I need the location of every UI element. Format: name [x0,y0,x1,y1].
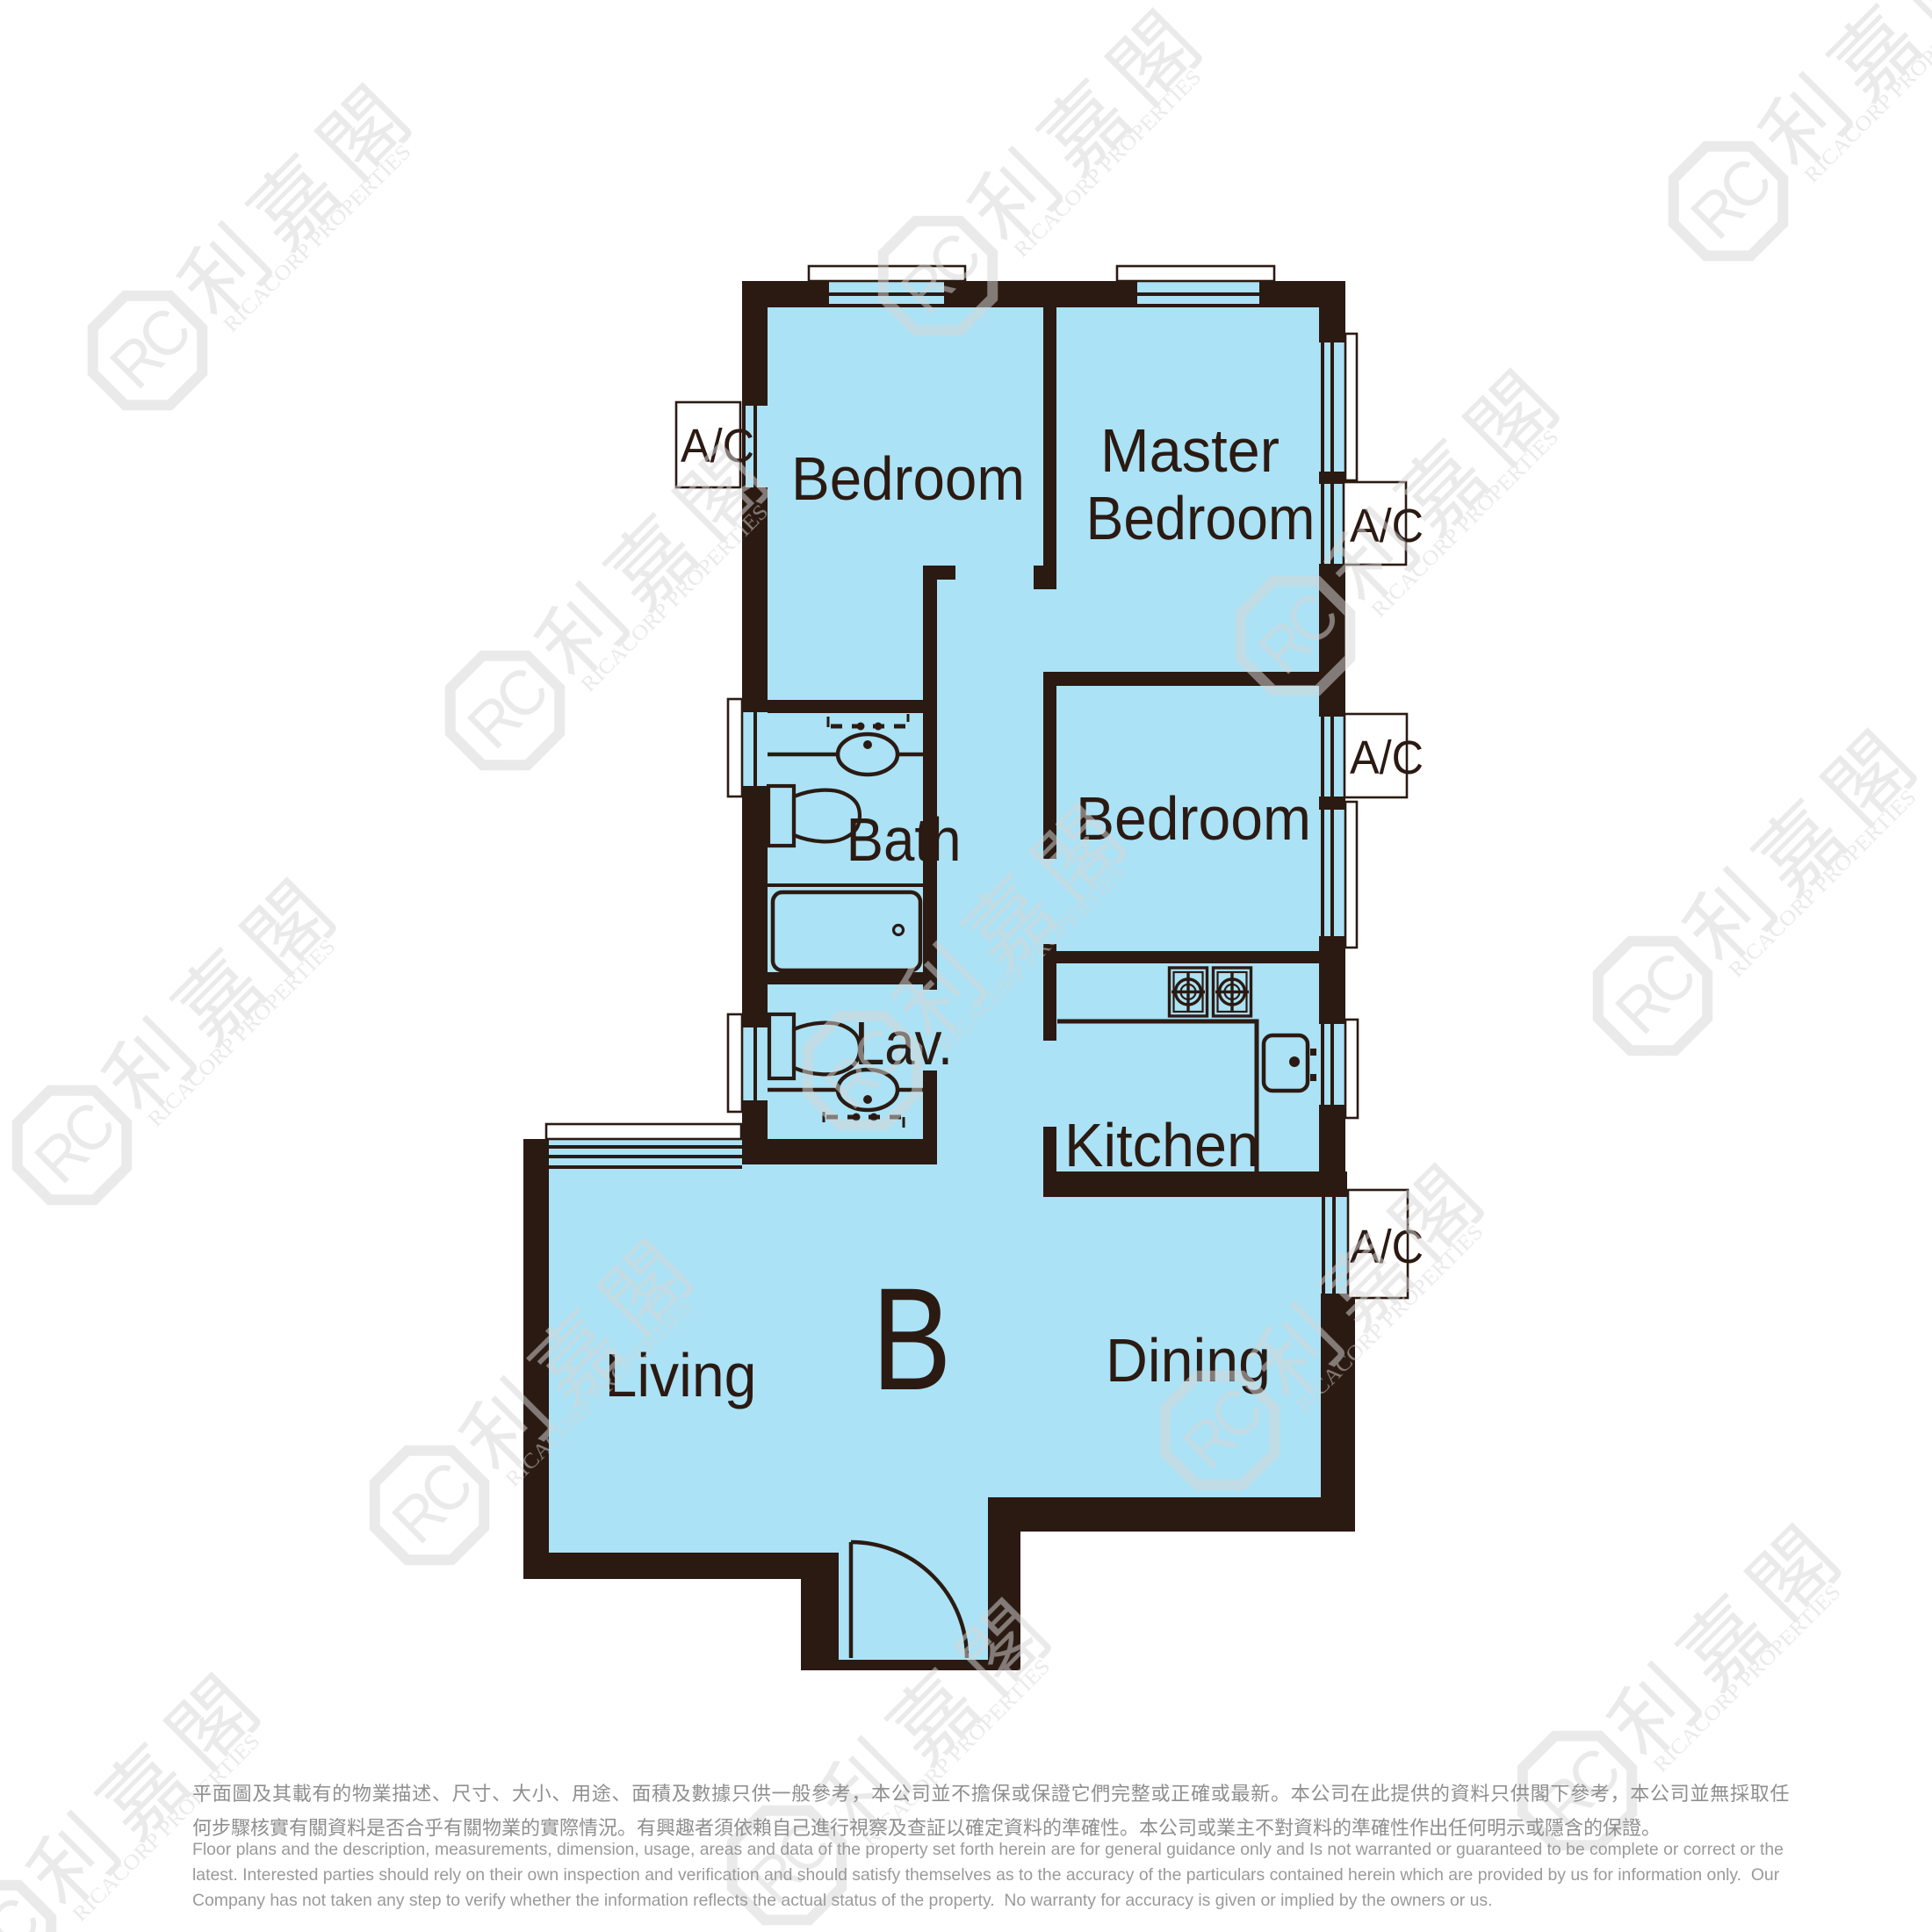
svg-text:Bath: Bath [847,805,962,874]
svg-text:Master: Master [1100,416,1280,485]
svg-text:Bedroom: Bedroom [791,444,1025,513]
svg-text:A/C: A/C [1350,732,1424,784]
svg-text:Bedroom: Bedroom [1086,484,1316,552]
svg-text:Kitchen: Kitchen [1064,1111,1259,1179]
svg-text:B: B [872,1258,952,1421]
